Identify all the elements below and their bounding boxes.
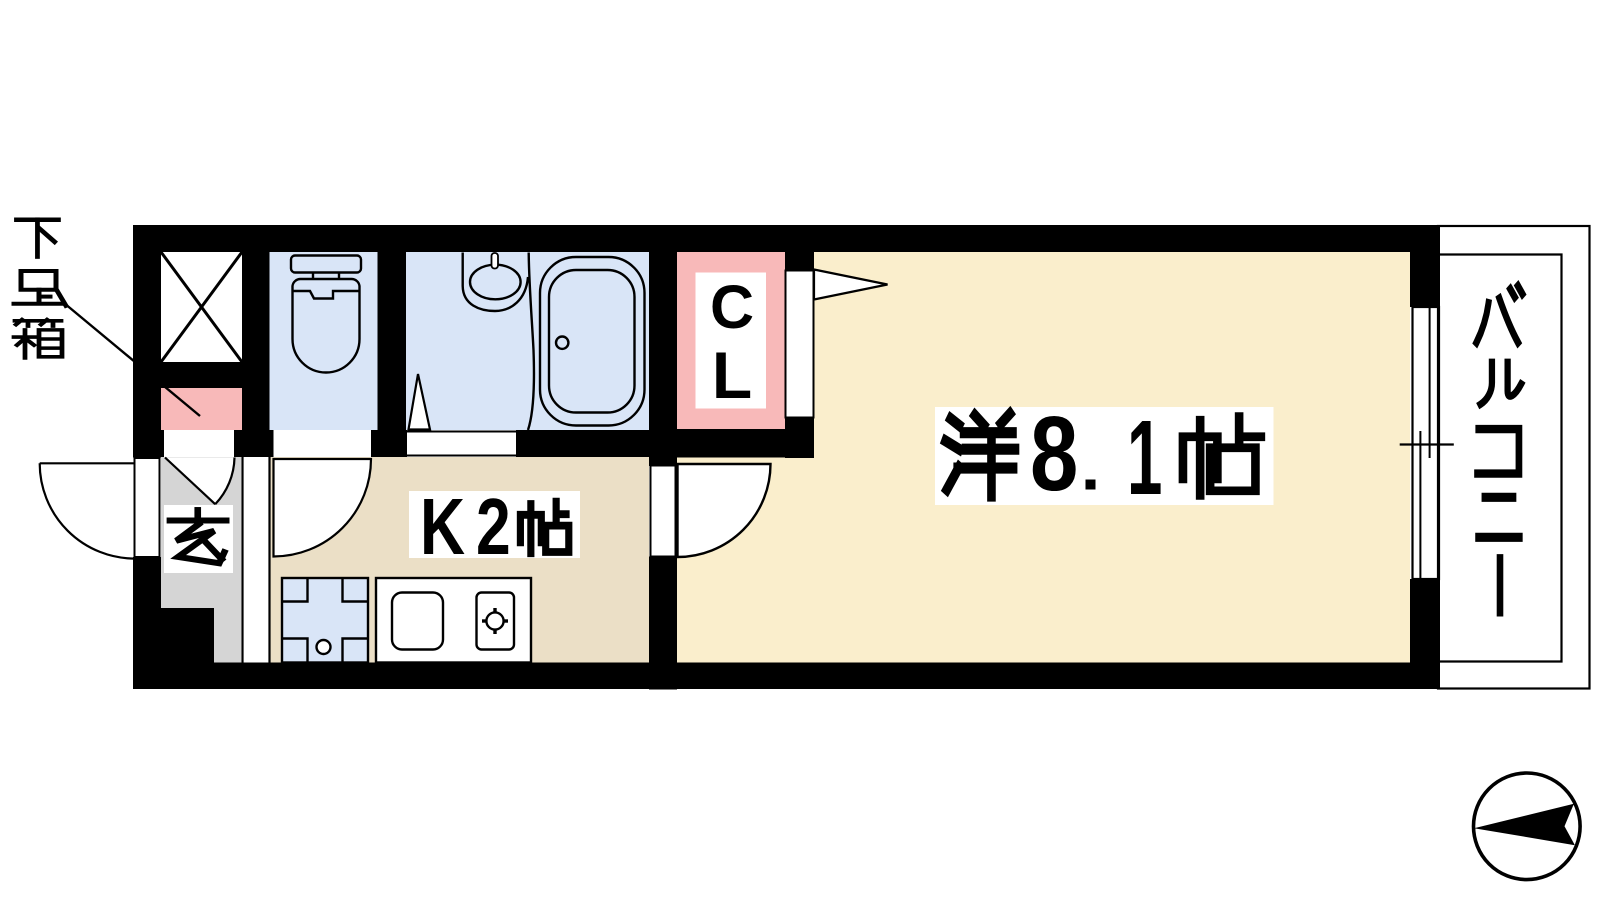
svg-text:8: 8	[1030, 394, 1078, 513]
svg-text:1: 1	[1127, 398, 1162, 517]
svg-text:K: K	[420, 483, 465, 572]
svg-text:2: 2	[476, 483, 511, 572]
svg-text:L: L	[712, 338, 752, 412]
svg-text:C: C	[710, 273, 754, 341]
